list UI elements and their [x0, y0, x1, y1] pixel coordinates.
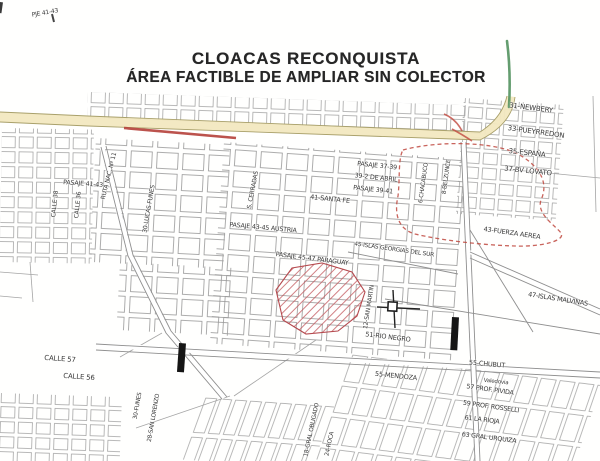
map-title-line2: ÁREA FACTIBLE DE AMPLIAR SIN COLECTOR — [0, 69, 600, 86]
islas-malvinas-road — [470, 252, 600, 309]
scan-artifacts — [0, 2, 54, 22]
map-title: CLOACAS RECONQUISTA ÁREA FACTIBLE DE AMP… — [0, 50, 600, 86]
map-title-line1: CLOACAS RECONQUISTA — [0, 50, 600, 69]
scanned-map-page: CLOACAS RECONQUISTA ÁREA FACTIBLE DE AMP… — [0, 0, 600, 461]
